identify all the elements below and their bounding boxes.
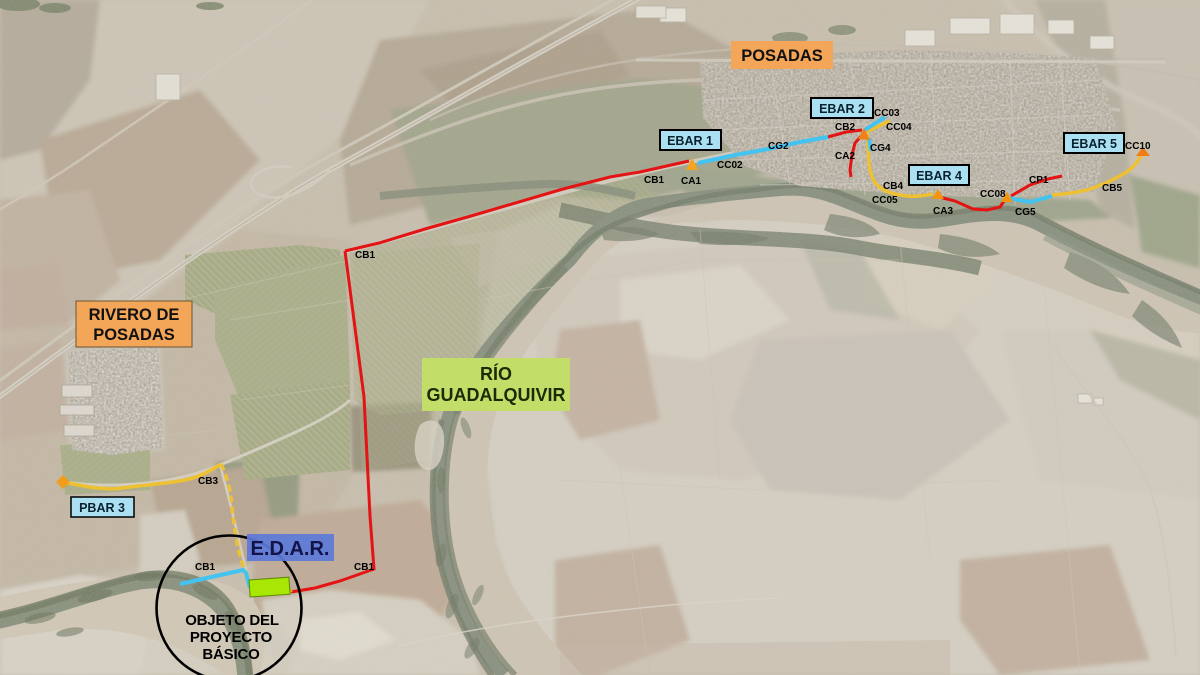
svg-text:CC02: CC02: [717, 160, 743, 171]
svg-text:CG4: CG4: [870, 143, 891, 154]
svg-text:CB3: CB3: [198, 476, 218, 487]
svg-text:GUADALQUIVIR: GUADALQUIVIR: [427, 385, 566, 405]
svg-text:CB2: CB2: [835, 122, 855, 133]
svg-text:CC10: CC10: [1125, 141, 1151, 152]
svg-text:EBAR 5: EBAR 5: [1071, 137, 1117, 151]
svg-text:CA1: CA1: [681, 176, 701, 187]
svg-text:CC03: CC03: [874, 108, 900, 119]
svg-text:EBAR 4: EBAR 4: [916, 169, 962, 183]
svg-text:CB5: CB5: [1102, 183, 1122, 194]
svg-text:CB1: CB1: [354, 562, 374, 573]
svg-text:CG5: CG5: [1015, 207, 1036, 218]
svg-text:EBAR 1: EBAR 1: [667, 134, 713, 148]
svg-text:CA2: CA2: [835, 151, 855, 162]
svg-text:CB4: CB4: [883, 181, 903, 192]
svg-text:RIVERO DE: RIVERO DE: [89, 306, 180, 324]
svg-text:E.D.A.R.: E.D.A.R.: [251, 538, 330, 560]
svg-text:EBAR 2: EBAR 2: [819, 102, 865, 116]
svg-text:CC04: CC04: [886, 122, 912, 133]
svg-text:CP1: CP1: [1029, 175, 1049, 186]
svg-text:CB1: CB1: [195, 562, 215, 573]
svg-text:BÁSICO: BÁSICO: [202, 646, 260, 663]
svg-text:POSADAS: POSADAS: [93, 326, 175, 344]
svg-text:PBAR 3: PBAR 3: [79, 501, 125, 515]
svg-text:PROYECTO: PROYECTO: [190, 629, 273, 646]
svg-text:CC05: CC05: [872, 195, 898, 206]
svg-text:POSADAS: POSADAS: [741, 47, 823, 65]
svg-text:CC08: CC08: [980, 189, 1006, 200]
svg-text:CB1: CB1: [355, 250, 375, 261]
svg-text:CG2: CG2: [768, 141, 789, 152]
svg-text:OBJETO DEL: OBJETO DEL: [185, 612, 279, 629]
svg-text:CB1: CB1: [644, 175, 664, 186]
svg-text:RÍO: RÍO: [480, 363, 512, 384]
svg-text:CA3: CA3: [933, 206, 953, 217]
